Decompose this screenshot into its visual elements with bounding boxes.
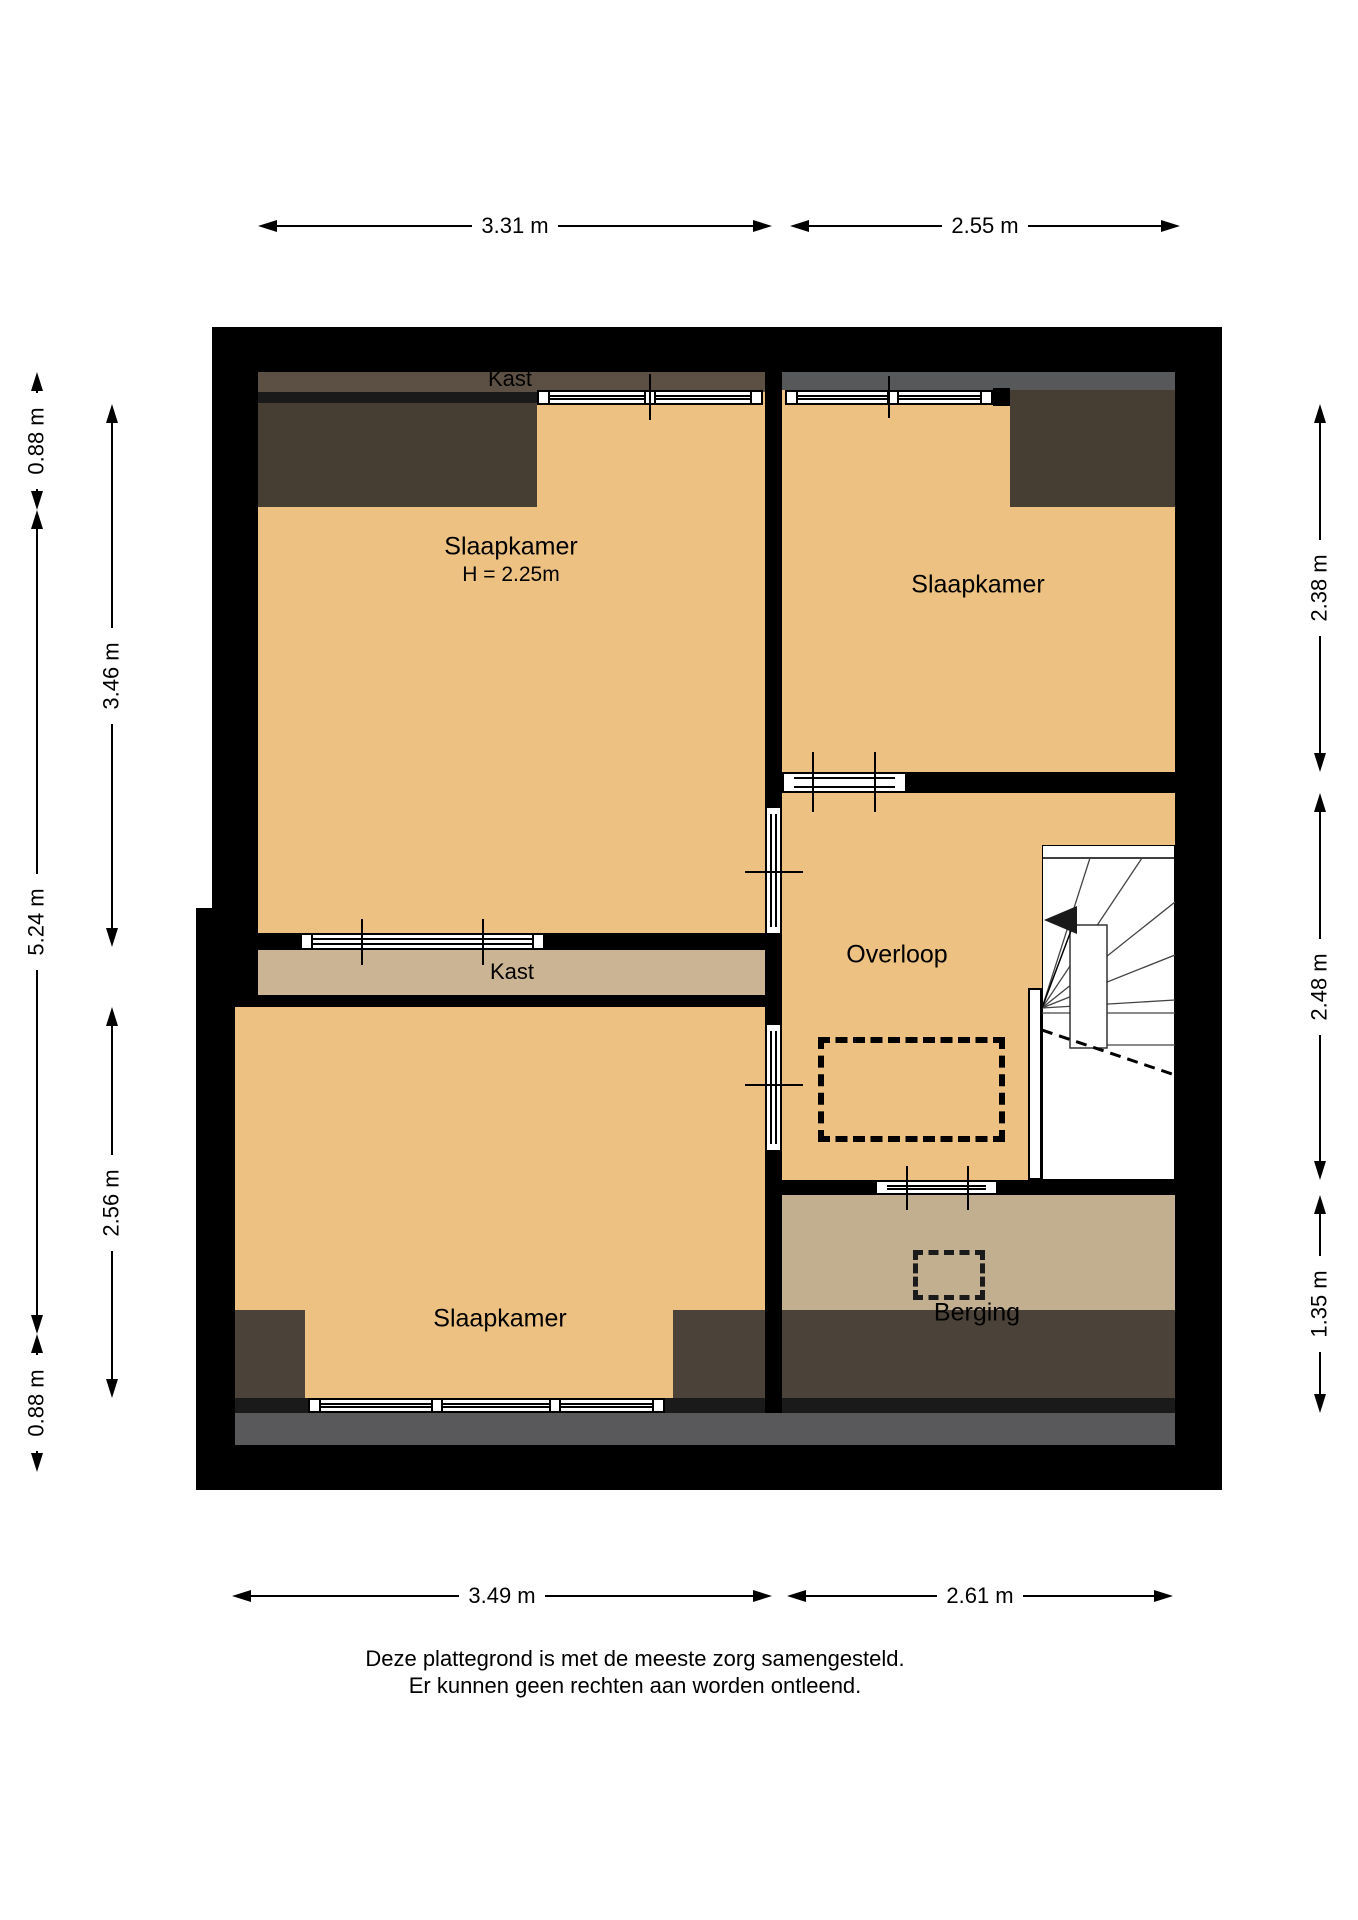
arrow-up-icon	[31, 372, 43, 391]
arrow-down-icon	[106, 928, 118, 947]
window-overloop-top	[782, 772, 907, 793]
dimension-top-right: 2.55 m	[790, 211, 1180, 241]
wall-overloop-bottom-right-seg	[998, 1180, 1175, 1195]
door-tick	[745, 1084, 803, 1086]
dimension-label: 2.55 m	[942, 213, 1027, 239]
dimension-label: 3.31 m	[472, 213, 557, 239]
disclaimer-line-1: Deze plattegrond is met de meeste zorg s…	[0, 1645, 1270, 1672]
room-label-slaapkamer-bottom: Slaapkamer	[433, 1305, 566, 1334]
arrow-up-icon	[106, 404, 118, 423]
arrow-down-icon	[1314, 753, 1326, 772]
arrow-right-icon	[1161, 220, 1180, 232]
arrow-left-icon	[232, 1590, 251, 1602]
dimension-right-238: 2.38 m	[1305, 404, 1335, 772]
dimension-label: 5.24 m	[24, 888, 50, 955]
room-label-slaapkamer-topright: Slaapkamer	[911, 571, 1044, 600]
arrow-left-icon	[790, 220, 809, 232]
arrow-up-icon	[106, 1007, 118, 1026]
window-tick	[906, 1166, 908, 1210]
arrow-right-icon	[753, 220, 772, 232]
dimension-label: 2.56 m	[99, 1169, 125, 1236]
dimension-left-088-bottom: 0.88 m	[22, 1334, 52, 1472]
gray-strip-topright	[782, 372, 1175, 390]
wall-kast-bottom	[212, 995, 765, 1007]
arrow-down-icon	[31, 1315, 43, 1334]
roof-shadow-rect-bottommid	[673, 1310, 765, 1398]
disclaimer-line-2: Er kunnen geen rechten aan worden ontlee…	[0, 1672, 1270, 1699]
dimension-bottom-left: 3.49 m	[232, 1581, 772, 1611]
arrow-up-icon	[1314, 404, 1326, 423]
wall-central-lower	[765, 1150, 782, 1413]
wall-stub-topright-window	[993, 388, 1010, 406]
window-tick	[649, 374, 651, 420]
window-bottom	[308, 1398, 665, 1413]
roof-shadow-rect-bottomleft	[235, 1310, 305, 1398]
arrow-down-icon	[1314, 1394, 1326, 1413]
window-tick	[812, 752, 814, 812]
arrow-down-icon	[1314, 1161, 1326, 1180]
chimney-outline	[913, 1250, 985, 1300]
room-label-slaapkamer-topleft: Slaapkamer	[444, 533, 577, 562]
dimension-label: 2.48 m	[1307, 953, 1333, 1020]
window-tick	[888, 376, 890, 418]
floorplan-canvas: Kast Slaapkamer H = 2.25m Slaapkamer Ove…	[0, 0, 1358, 1920]
dimension-right-248: 2.48 m	[1305, 793, 1335, 1180]
room-label-berging: Berging	[934, 1299, 1020, 1328]
dimension-left-346: 3.46 m	[97, 404, 127, 947]
room-label-overloop: Overloop	[846, 941, 947, 970]
dimension-label: 2.38 m	[1307, 554, 1333, 621]
wall-left-upper	[212, 327, 258, 1007]
wall-overloop-bottom-left-seg	[782, 1180, 875, 1195]
wall-kast-top-left-seg	[235, 933, 300, 950]
dimension-left-524: 5.24 m	[22, 510, 52, 1334]
wall-topright-bottom	[907, 772, 1175, 793]
arrow-down-icon	[31, 491, 43, 510]
window-overloop-berging	[875, 1180, 998, 1195]
bottom-gray-band	[235, 1413, 1175, 1445]
dimension-label: 3.46 m	[99, 642, 125, 709]
arrow-right-icon	[1154, 1590, 1173, 1602]
room-height-note: H = 2.25m	[462, 563, 559, 587]
arrow-down-icon	[106, 1379, 118, 1398]
dimension-left-256: 2.56 m	[97, 1007, 127, 1398]
arrow-right-icon	[753, 1590, 772, 1602]
door-band-bottom-room	[765, 1025, 782, 1150]
arrow-left-icon	[258, 220, 277, 232]
dimension-bottom-right: 2.61 m	[787, 1581, 1173, 1611]
arrow-up-icon	[31, 1334, 43, 1353]
dimension-label: 3.49 m	[459, 1583, 544, 1609]
window-tick	[482, 919, 484, 965]
disclaimer-text: Deze plattegrond is met de meeste zorg s…	[0, 1645, 1270, 1699]
dimension-top-left: 3.31 m	[258, 211, 772, 241]
arrow-up-icon	[1314, 793, 1326, 812]
wall-bottom	[196, 1445, 1222, 1490]
vide-dashed-outline	[818, 1037, 1005, 1142]
arrow-up-icon	[1314, 1195, 1326, 1214]
arrow-down-icon	[31, 1453, 43, 1472]
wall-central-middle	[765, 933, 782, 1025]
wall-kast-top-right-seg	[545, 933, 765, 950]
roof-shadow-rect-topright	[1010, 390, 1175, 507]
window-tick	[874, 752, 876, 812]
stair-balustrade	[1028, 988, 1042, 1180]
staircase	[1042, 845, 1175, 1180]
dimension-right-135: 1.35 m	[1305, 1195, 1335, 1413]
roof-shadow-rect-topleft	[258, 403, 537, 507]
dimension-label: 0.88 m	[24, 1369, 50, 1436]
door-tick	[745, 871, 803, 873]
dimension-left-088-top: 0.88 m	[22, 372, 52, 510]
room-label-kast-top: Kast	[488, 366, 532, 392]
dimension-label: 0.88 m	[24, 407, 50, 474]
window-tick	[361, 919, 363, 965]
window-kast-internal	[300, 933, 545, 950]
dimension-label: 1.35 m	[1307, 1270, 1333, 1337]
wall-central-upper	[765, 327, 782, 808]
wall-right	[1175, 327, 1222, 1490]
arrow-left-icon	[787, 1590, 806, 1602]
dimension-label: 2.61 m	[937, 1583, 1022, 1609]
arrow-up-icon	[31, 510, 43, 529]
room-label-kast-middle: Kast	[490, 959, 534, 985]
wall-top	[212, 327, 1222, 372]
window-tick	[967, 1166, 969, 1210]
